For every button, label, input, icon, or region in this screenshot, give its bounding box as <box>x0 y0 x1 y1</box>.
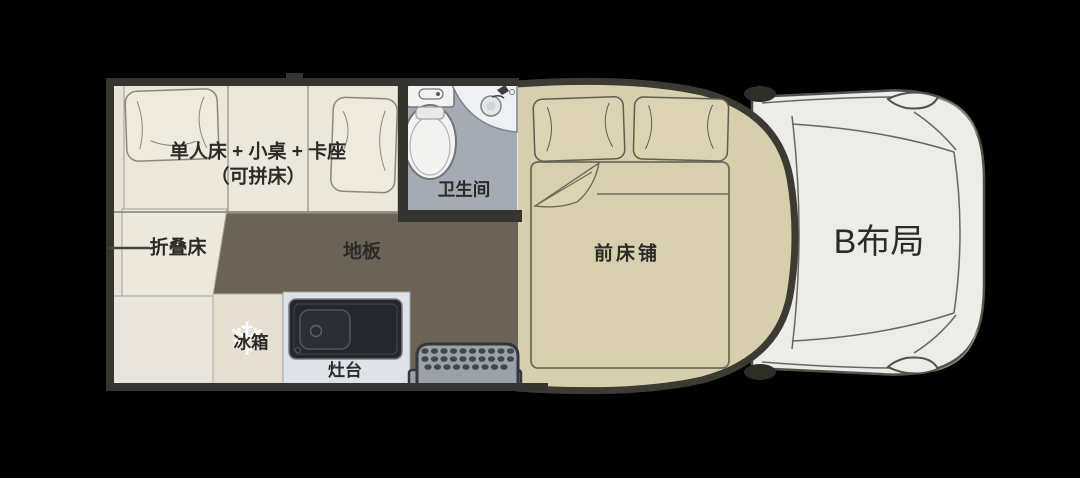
front-pillow-left <box>533 96 625 161</box>
bathroom-wall-bottom <box>398 210 522 222</box>
stove-unit <box>289 299 402 359</box>
combo-bed-label: 单人床 + 小桌 + 卡座 （可拼床） <box>170 140 346 189</box>
entry-step <box>409 344 521 388</box>
rear-cabinet <box>110 296 213 386</box>
front-wheel-bottom <box>744 364 776 380</box>
front-wheel-top <box>744 86 776 102</box>
wall-left <box>106 78 114 391</box>
wall-vent <box>286 73 303 79</box>
fridge-label: 冰箱 <box>234 332 269 355</box>
stove-label: 灶台 <box>328 360 362 382</box>
front-pillow-right <box>633 97 729 161</box>
combo-bed-label-line1: 单人床 + 小桌 + 卡座 <box>170 140 346 165</box>
rv-floorplan-canvas: 单人床 + 小桌 + 卡座 （可拼床） 折叠床 地板 卫生间 ❄ 冰箱 灶台 前… <box>0 0 1080 478</box>
bathroom-label: 卫生间 <box>438 179 491 202</box>
floor-label: 地板 <box>343 241 381 266</box>
folding-bed-label: 折叠床 <box>149 237 206 262</box>
bathroom-wall-left <box>398 78 408 222</box>
layout-title: B布局 <box>834 220 925 264</box>
toilet-seat-hinge <box>416 107 444 119</box>
combo-bed-label-line2: （可拼床） <box>170 165 346 190</box>
front-bed-label: 前床铺 <box>594 243 660 268</box>
sink-basin <box>300 310 350 349</box>
wall-bottom <box>106 383 548 391</box>
wall-top <box>106 78 519 86</box>
